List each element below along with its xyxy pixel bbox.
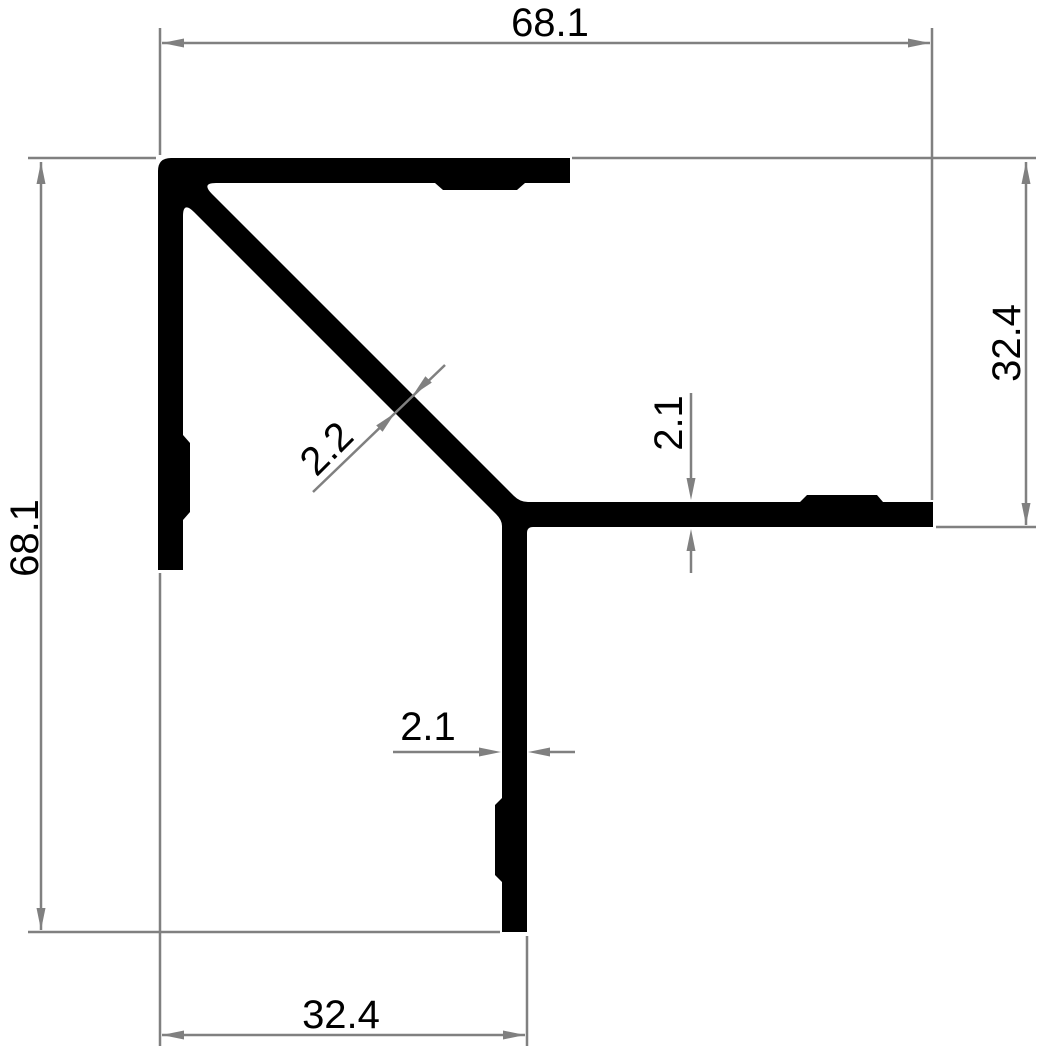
dim-right-leg: 32.4: [572, 158, 1036, 527]
dim-bottom-wall-label: 2.1: [400, 705, 456, 749]
dim-overall-height-label: 68.1: [3, 499, 47, 577]
arrowhead-left-icon: [528, 748, 550, 757]
dim-bottom-leg: 32.4: [160, 573, 527, 1046]
arrowhead-down-icon: [37, 908, 46, 930]
dim-right-leg-label: 32.4: [985, 304, 1029, 382]
dim-diagonal-wall-label: 2.2: [292, 414, 362, 484]
corner-profile-shape: [158, 158, 933, 932]
arrowhead-left-icon: [162, 39, 184, 48]
dim-overall-height-left: 68.1: [3, 158, 500, 932]
dim-bottom-leg-label: 32.4: [302, 993, 380, 1037]
dim-right-wall-label: 2.1: [647, 395, 691, 451]
dim-overall-width-top: 68.1: [160, 1, 932, 500]
arrowhead-right-icon: [503, 1031, 525, 1040]
arrowhead-down-icon: [1022, 503, 1031, 525]
arrowhead-up-icon: [687, 529, 696, 551]
arrowhead-up-icon: [1022, 162, 1031, 184]
technical-drawing: 68.1 68.1 32.4 32.4: [0, 0, 1042, 1051]
arrowhead-down-icon: [687, 478, 696, 500]
arrowhead-up-icon: [37, 162, 46, 184]
arrowhead-left-icon: [162, 1031, 184, 1040]
arrowhead-right-icon: [908, 39, 930, 48]
dim-bottom-wall-thickness: 2.1: [393, 705, 575, 757]
arrowhead-right-icon: [479, 748, 501, 757]
dim-right-wall-thickness: 2.1: [647, 393, 696, 573]
dim-overall-width-label: 68.1: [511, 1, 589, 45]
profile-drawing-canvas: 68.1 68.1 32.4 32.4: [0, 0, 1042, 1051]
